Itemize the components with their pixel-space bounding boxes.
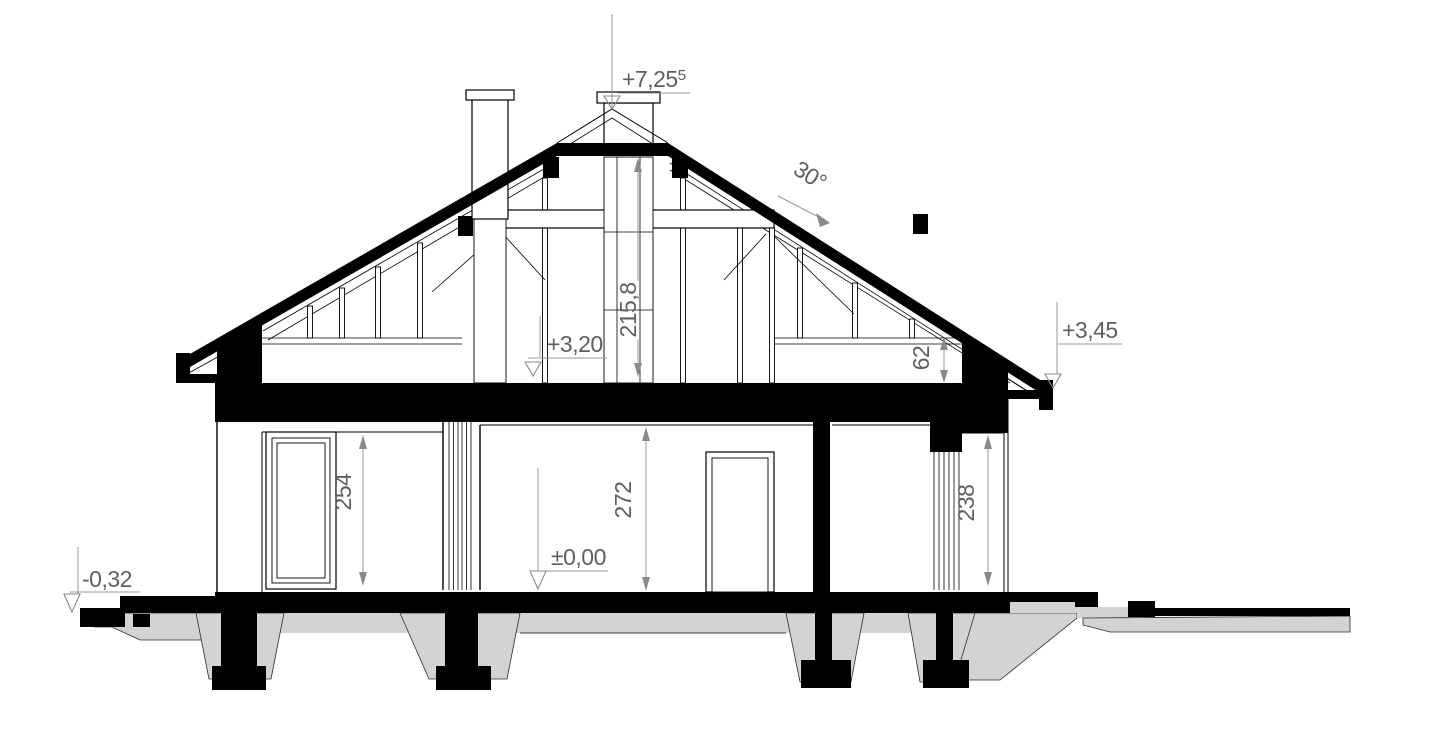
pier-inner-left-footing [436, 666, 491, 690]
pier-right-wall [936, 613, 953, 663]
terrace-band [120, 596, 217, 613]
eaves-level-label: +3,45 [1062, 317, 1118, 343]
post [770, 228, 775, 383]
ground-right-step [1077, 607, 1130, 618]
footing-right-mass [955, 613, 1077, 680]
ground-floor-slab [215, 592, 1010, 613]
purlin [913, 214, 928, 234]
stud [308, 306, 313, 338]
ground-step-2 [1128, 601, 1155, 617]
ridge-level-label: +7,255 [622, 66, 686, 92]
terrace-step [80, 608, 125, 627]
post [738, 228, 743, 383]
room-center-value: 272 [610, 482, 636, 519]
soffit-right [1005, 390, 1050, 399]
roof-pitch-label: 30° [778, 155, 831, 227]
house-cross-section-drawing: +7,255 30° +3,45 +3,20 ±0,00 [0, 0, 1440, 732]
stud [376, 267, 381, 338]
ground-step-1 [1075, 592, 1098, 607]
porch-right-value: 238 [953, 485, 979, 522]
pier-left-wall-footing [212, 666, 266, 690]
annotations: +7,255 30° +3,45 +3,20 ±0,00 [64, 14, 1122, 612]
chimney-shaft-center [604, 157, 653, 383]
room-left-value: 254 [330, 473, 356, 511]
level-marker-attic: +3,20 [525, 316, 607, 376]
stud [910, 319, 915, 338]
attic-height-value: 215,8 [615, 282, 641, 337]
stud [853, 283, 858, 338]
window-left [266, 432, 336, 589]
porch-floor-band [1010, 592, 1077, 602]
purlin [458, 216, 473, 236]
pier-inner-right-footing [801, 660, 851, 688]
partition-door-left [443, 422, 480, 590]
level-marker-floor: ±0,00 [530, 468, 608, 589]
terrain-level-label: -0,32 [82, 566, 132, 592]
attic-level-label: +3,20 [547, 331, 603, 357]
level-marker-eaves: +3,45 [1045, 302, 1122, 388]
knee-wall-value: 62 [908, 346, 934, 371]
pier-left-wall [221, 613, 257, 669]
cross-section-canvas: +7,255 30° +3,45 +3,20 ±0,00 [0, 0, 1440, 732]
ground-right-slab [1083, 616, 1350, 632]
floor-level-label: ±0,00 [551, 544, 606, 570]
ground-top-strip [1153, 608, 1350, 616]
attic-floor-slab [215, 383, 1008, 422]
door-center [706, 452, 774, 592]
roof-pitch-value: 30° [789, 155, 831, 195]
pier-inner-left [445, 613, 478, 669]
chimney-ridge-cap [597, 92, 660, 103]
stud [418, 243, 423, 338]
stud [340, 288, 345, 338]
post [681, 178, 686, 383]
pier-inner-right [815, 613, 832, 663]
chimney-left-cap [466, 90, 514, 100]
dimension-room-center: 272 [610, 427, 650, 591]
pier-right-wall-footing [923, 660, 969, 688]
terrace-step-small [133, 614, 150, 627]
lintel-right [930, 422, 962, 452]
ground-right-upper [1010, 601, 1077, 613]
interior-wall [813, 422, 830, 592]
